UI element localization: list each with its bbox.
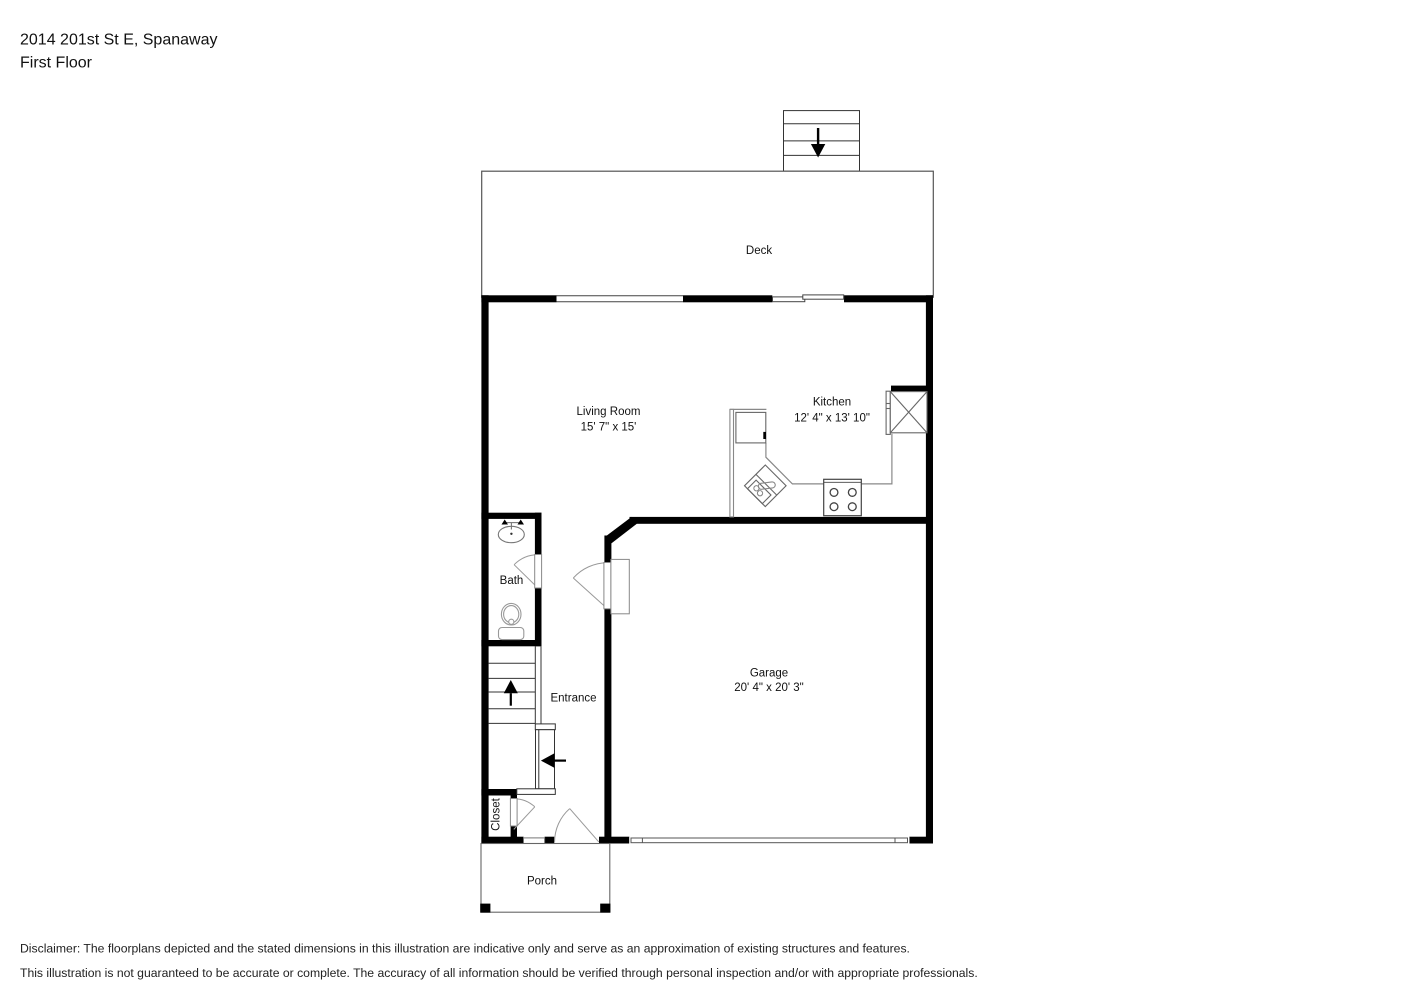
svg-text:20' 4" x 20' 3": 20' 4" x 20' 3" [734,682,803,694]
svg-text:Bath: Bath [500,575,524,587]
svg-text:2014 201st St E, Spanaway: 2014 201st St E, Spanaway [20,32,217,49]
svg-text:Deck: Deck [746,245,772,257]
svg-text:Living Room: Living Room [577,406,641,418]
svg-text:Entrance: Entrance [550,693,596,705]
svg-text:15' 7" x 15': 15' 7" x 15' [581,422,637,434]
svg-text:This illustration is not guara: This illustration is not guaranteed to b… [20,966,978,980]
svg-text:Kitchen: Kitchen [813,397,851,409]
svg-text:Garage: Garage [750,668,788,680]
svg-text:Porch: Porch [527,876,557,888]
svg-text:Closet: Closet [491,797,503,830]
svg-text:12' 4" x 13' 10": 12' 4" x 13' 10" [794,413,870,425]
svg-text:Disclaimer: The floorplans dep: Disclaimer: The floorplans depicted and … [20,942,910,956]
svg-text:First Floor: First Floor [20,55,93,72]
